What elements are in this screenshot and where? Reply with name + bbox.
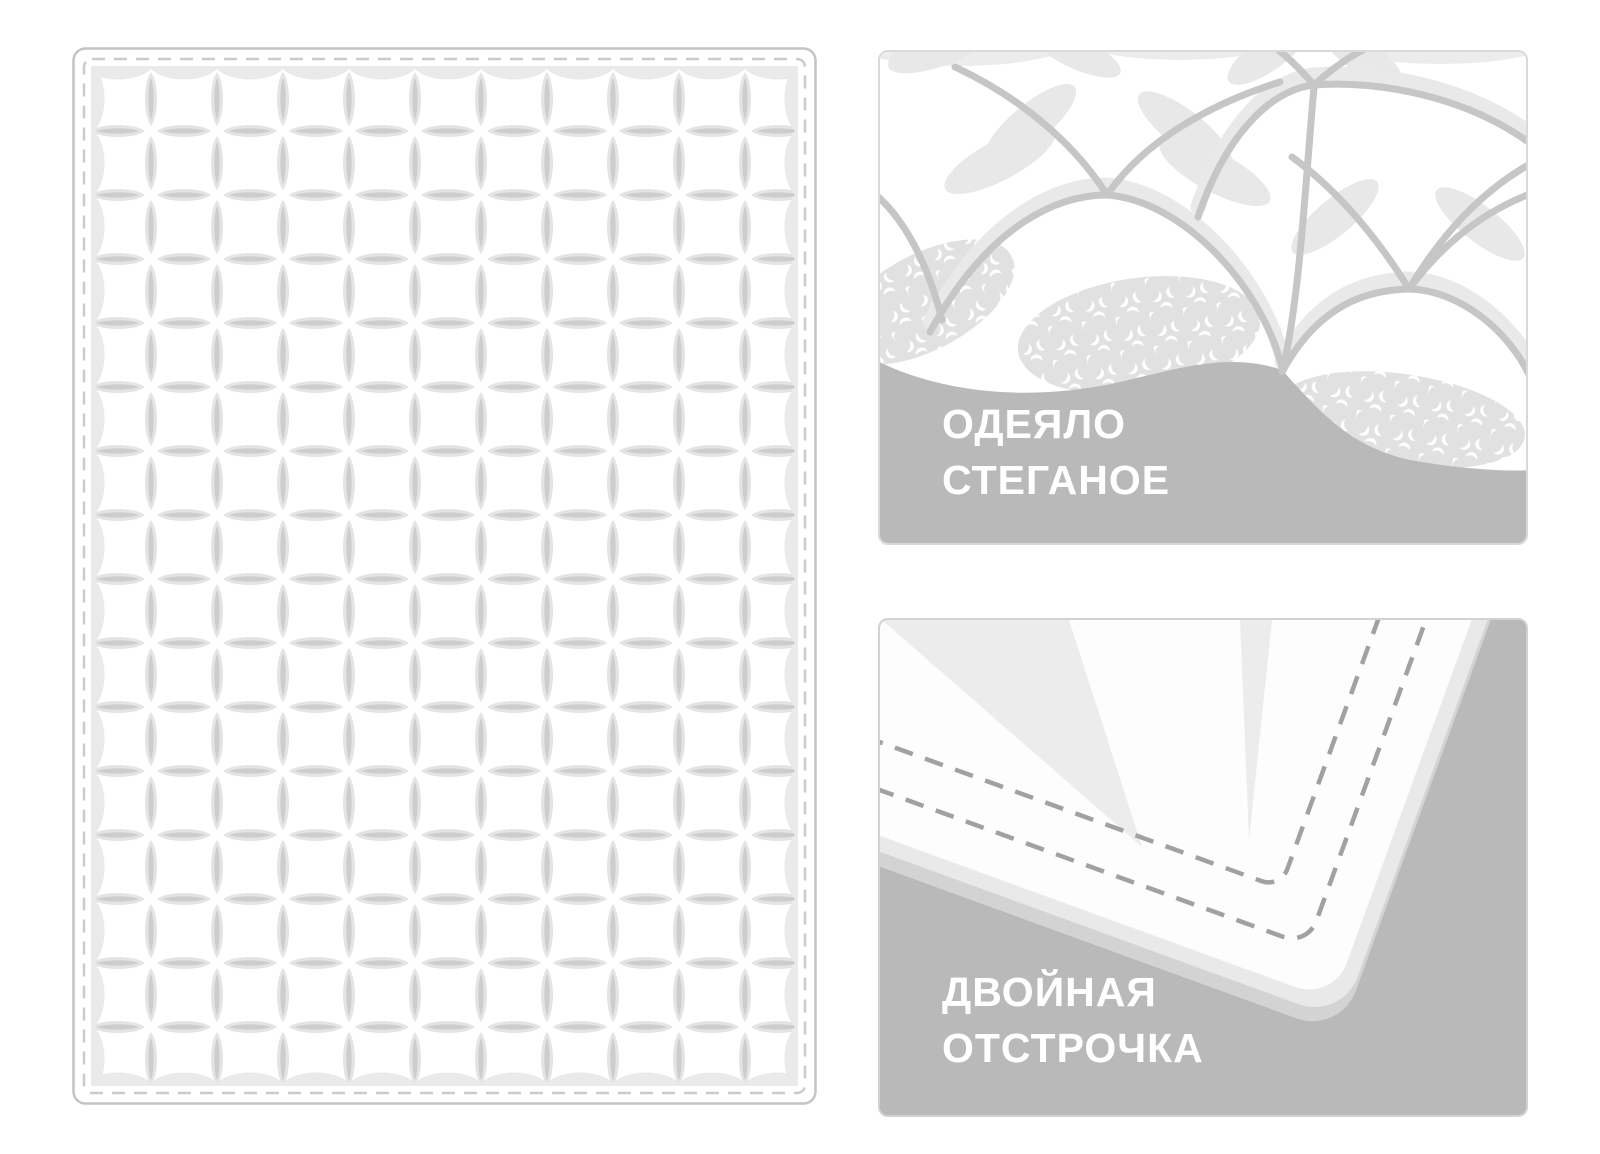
edge-scallops-top [91,66,798,84]
edge-scallops-right [780,66,798,1086]
callout-quilting-closeup: ОДЕЯЛО СТЕГАНОЕ [878,50,1528,545]
quilted-blanket-full-view [72,47,817,1105]
double-stitching-label: ДВОЙНАЯ ОТСТРОЧКА [942,964,1204,1076]
label-line: ДВОЙНАЯ [942,964,1204,1020]
edge-scallops-bottom [91,1068,798,1086]
product-illustration: ОДЕЯЛО СТЕГАНОЕ ДВОЙНА [0,0,1600,1154]
label-line: ОДЕЯЛО [942,396,1170,452]
label-line: ОТСТРОЧКА [942,1020,1204,1076]
callout-double-stitching: ДВОЙНАЯ ОТСТРОЧКА [878,618,1528,1117]
quilt-pattern [91,66,798,1086]
edge-scallops-left [91,66,109,1086]
label-line: СТЕГАНОЕ [942,452,1170,508]
quilted-blanket-label: ОДЕЯЛО СТЕГАНОЕ [942,396,1170,508]
